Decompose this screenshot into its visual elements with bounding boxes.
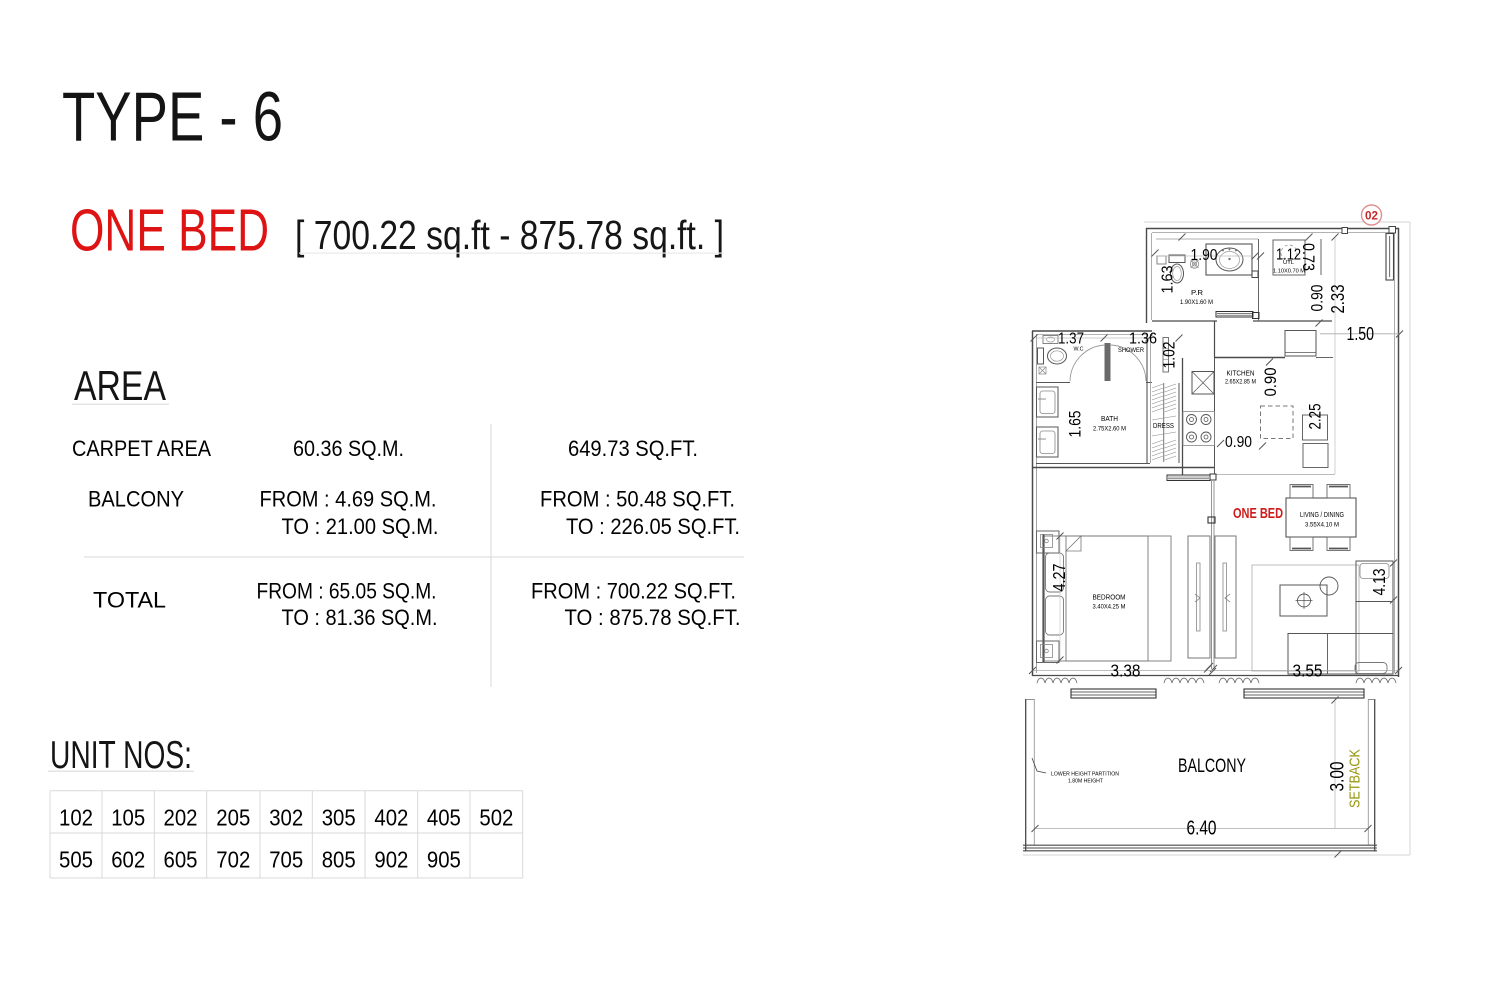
svg-text:1.90: 1.90 xyxy=(1191,247,1218,264)
svg-text:3.40X4.25 M: 3.40X4.25 M xyxy=(1093,604,1126,611)
svg-text:TYPE - 6: TYPE - 6 xyxy=(62,78,283,156)
svg-text:605: 605 xyxy=(164,847,198,873)
svg-text:902: 902 xyxy=(374,847,408,873)
svg-text:3.55: 3.55 xyxy=(1293,661,1323,681)
svg-text:1.90X1.60 M: 1.90X1.60 M xyxy=(1180,299,1213,306)
svg-text:1.37: 1.37 xyxy=(1058,331,1084,348)
svg-text:P.R: P.R xyxy=(1191,290,1203,297)
svg-text:302: 302 xyxy=(269,805,303,831)
svg-text:602: 602 xyxy=(111,847,145,873)
svg-text:4.13: 4.13 xyxy=(1369,569,1389,596)
svg-text:805: 805 xyxy=(322,847,356,873)
svg-text:649.73 SQ.FT.: 649.73 SQ.FT. xyxy=(568,436,698,461)
svg-text:02: 02 xyxy=(1365,211,1378,223)
svg-text:TO : 81.36 SQ.M.: TO : 81.36 SQ.M. xyxy=(282,605,438,630)
svg-text:LIVING / DINING: LIVING / DINING xyxy=(1300,512,1344,519)
svg-text:505: 505 xyxy=(59,847,93,873)
svg-text:3.55X4.10 M: 3.55X4.10 M xyxy=(1305,522,1339,529)
svg-text:105: 105 xyxy=(111,805,145,831)
svg-text:3.38: 3.38 xyxy=(1111,661,1141,681)
svg-text:FROM : 65.05 SQ.M.: FROM : 65.05 SQ.M. xyxy=(257,579,437,604)
svg-text:1.02: 1.02 xyxy=(1161,342,1179,369)
svg-text:BEDROOM: BEDROOM xyxy=(1093,593,1126,602)
svg-text:402: 402 xyxy=(374,805,408,831)
svg-text:0.90: 0.90 xyxy=(1225,434,1252,451)
svg-text:705: 705 xyxy=(269,847,303,873)
svg-text:205: 205 xyxy=(216,805,250,831)
svg-text:1.63: 1.63 xyxy=(1160,265,1177,293)
svg-text:1.36: 1.36 xyxy=(1129,331,1157,348)
svg-text:1.50: 1.50 xyxy=(1347,323,1375,344)
svg-text:2.75X2.60 M: 2.75X2.60 M xyxy=(1093,426,1126,433)
svg-text:KITCHEN: KITCHEN xyxy=(1227,371,1255,378)
svg-text:1.10X0.70 M: 1.10X0.70 M xyxy=(1273,269,1305,275)
svg-text:FROM : 50.48 SQ.FT.: FROM : 50.48 SQ.FT. xyxy=(540,487,735,512)
svg-text:ONE BED: ONE BED xyxy=(70,198,269,264)
svg-text:0.73: 0.73 xyxy=(1299,243,1317,271)
svg-text:AREA: AREA xyxy=(74,362,166,409)
svg-text:CARPET AREA: CARPET AREA xyxy=(72,436,211,461)
svg-text:3.00: 3.00 xyxy=(1328,762,1349,792)
svg-text:UTL: UTL xyxy=(1283,260,1294,266)
svg-text:4.27: 4.27 xyxy=(1049,564,1069,592)
svg-text:305: 305 xyxy=(322,805,356,831)
svg-text:DRESS: DRESS xyxy=(1153,423,1174,430)
svg-text:502: 502 xyxy=(479,805,513,831)
svg-text:SETBACK: SETBACK xyxy=(1347,749,1364,808)
svg-text:BALCONY: BALCONY xyxy=(1178,755,1246,777)
svg-text:102: 102 xyxy=(59,805,93,831)
svg-text:202: 202 xyxy=(164,805,198,831)
svg-text:0.90: 0.90 xyxy=(1262,368,1280,397)
svg-text:TO : 21.00 SQ.M.: TO : 21.00 SQ.M. xyxy=(282,514,439,539)
svg-text:6.40: 6.40 xyxy=(1187,818,1217,840)
svg-text:[ 700.22 sq.ft - 875.78 sq.ft.: [ 700.22 sq.ft - 875.78 sq.ft. ] xyxy=(295,212,724,258)
svg-text:BALCONY: BALCONY xyxy=(88,487,184,512)
svg-text:SHOWER: SHOWER xyxy=(1118,347,1144,354)
svg-text:905: 905 xyxy=(427,847,461,873)
svg-text:FROM : 4.69 SQ.M.: FROM : 4.69 SQ.M. xyxy=(260,487,437,512)
svg-text:702: 702 xyxy=(216,847,250,873)
svg-text:TO : 226.05 SQ.FT.: TO : 226.05 SQ.FT. xyxy=(566,514,740,539)
svg-text:BATH: BATH xyxy=(1101,414,1118,423)
svg-text:LOWER HEIGHT PARTITION: LOWER HEIGHT PARTITION xyxy=(1051,772,1119,778)
svg-text:2.33: 2.33 xyxy=(1328,285,1348,314)
svg-text:1.65: 1.65 xyxy=(1067,411,1085,438)
svg-text:W.C: W.C xyxy=(1074,347,1084,353)
svg-text:0.90: 0.90 xyxy=(1309,285,1327,312)
svg-text:FROM : 700.22 SQ.FT.: FROM : 700.22 SQ.FT. xyxy=(531,579,736,604)
svg-text:TOTAL: TOTAL xyxy=(93,588,166,613)
svg-text:60.36 SQ.M.: 60.36 SQ.M. xyxy=(293,436,404,461)
svg-text:405: 405 xyxy=(427,805,461,831)
svg-text:2.25: 2.25 xyxy=(1306,404,1325,430)
svg-text:1.80M HEIGHT: 1.80M HEIGHT xyxy=(1068,779,1103,785)
svg-text:2.65X2.85 M: 2.65X2.85 M xyxy=(1225,379,1256,386)
svg-text:ONE BED: ONE BED xyxy=(1233,505,1283,522)
svg-text:TO : 875.78 SQ.FT.: TO : 875.78 SQ.FT. xyxy=(565,605,741,630)
